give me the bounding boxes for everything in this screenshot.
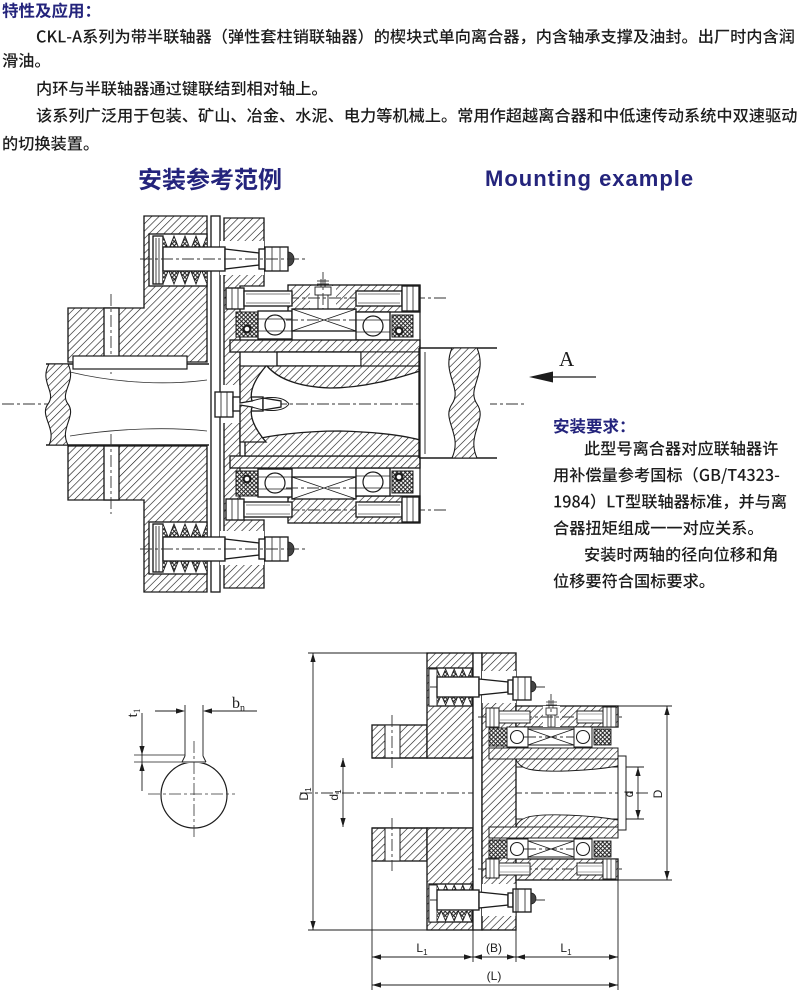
svg-text:t1: t1 bbox=[125, 709, 142, 718]
svg-text:L1: L1 bbox=[416, 941, 428, 957]
svg-text:Mounting example: Mounting example bbox=[485, 166, 694, 191]
svg-text:d: d bbox=[622, 791, 636, 798]
svg-text:(B): (B) bbox=[486, 941, 502, 955]
svg-text:D1: D1 bbox=[297, 787, 313, 801]
svg-text:D: D bbox=[651, 789, 665, 798]
svg-text:bn: bn bbox=[232, 695, 245, 714]
svg-text:d1: d1 bbox=[327, 789, 343, 801]
svg-text:L1: L1 bbox=[560, 941, 572, 957]
svg-text:A: A bbox=[559, 347, 575, 371]
svg-text:(L): (L) bbox=[487, 969, 502, 983]
